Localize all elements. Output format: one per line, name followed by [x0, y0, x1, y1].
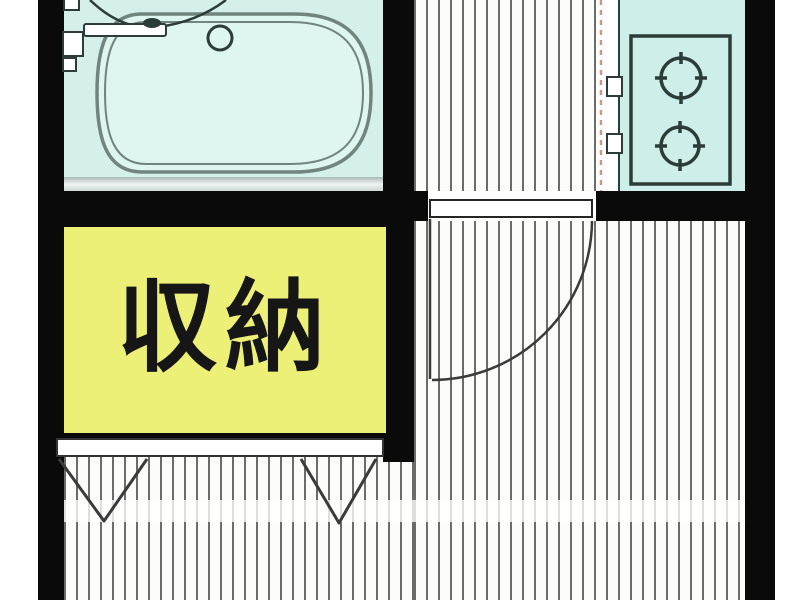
lower-room-floor	[64, 457, 414, 600]
floor-seam-line	[64, 500, 746, 522]
kitchen-corridor-floor	[414, 0, 602, 192]
closet-box: 収納	[58, 221, 392, 439]
door-leaf	[429, 199, 593, 218]
wall-right	[745, 0, 775, 600]
main-room-floor	[414, 221, 746, 600]
floorplan-canvas: 収納	[0, 0, 800, 600]
closet-door-track	[56, 438, 384, 457]
closet-label: 収納	[117, 278, 333, 378]
bathroom-area	[64, 0, 383, 177]
counter-front-strip	[602, 0, 618, 192]
kitchen-counter	[618, 0, 746, 192]
